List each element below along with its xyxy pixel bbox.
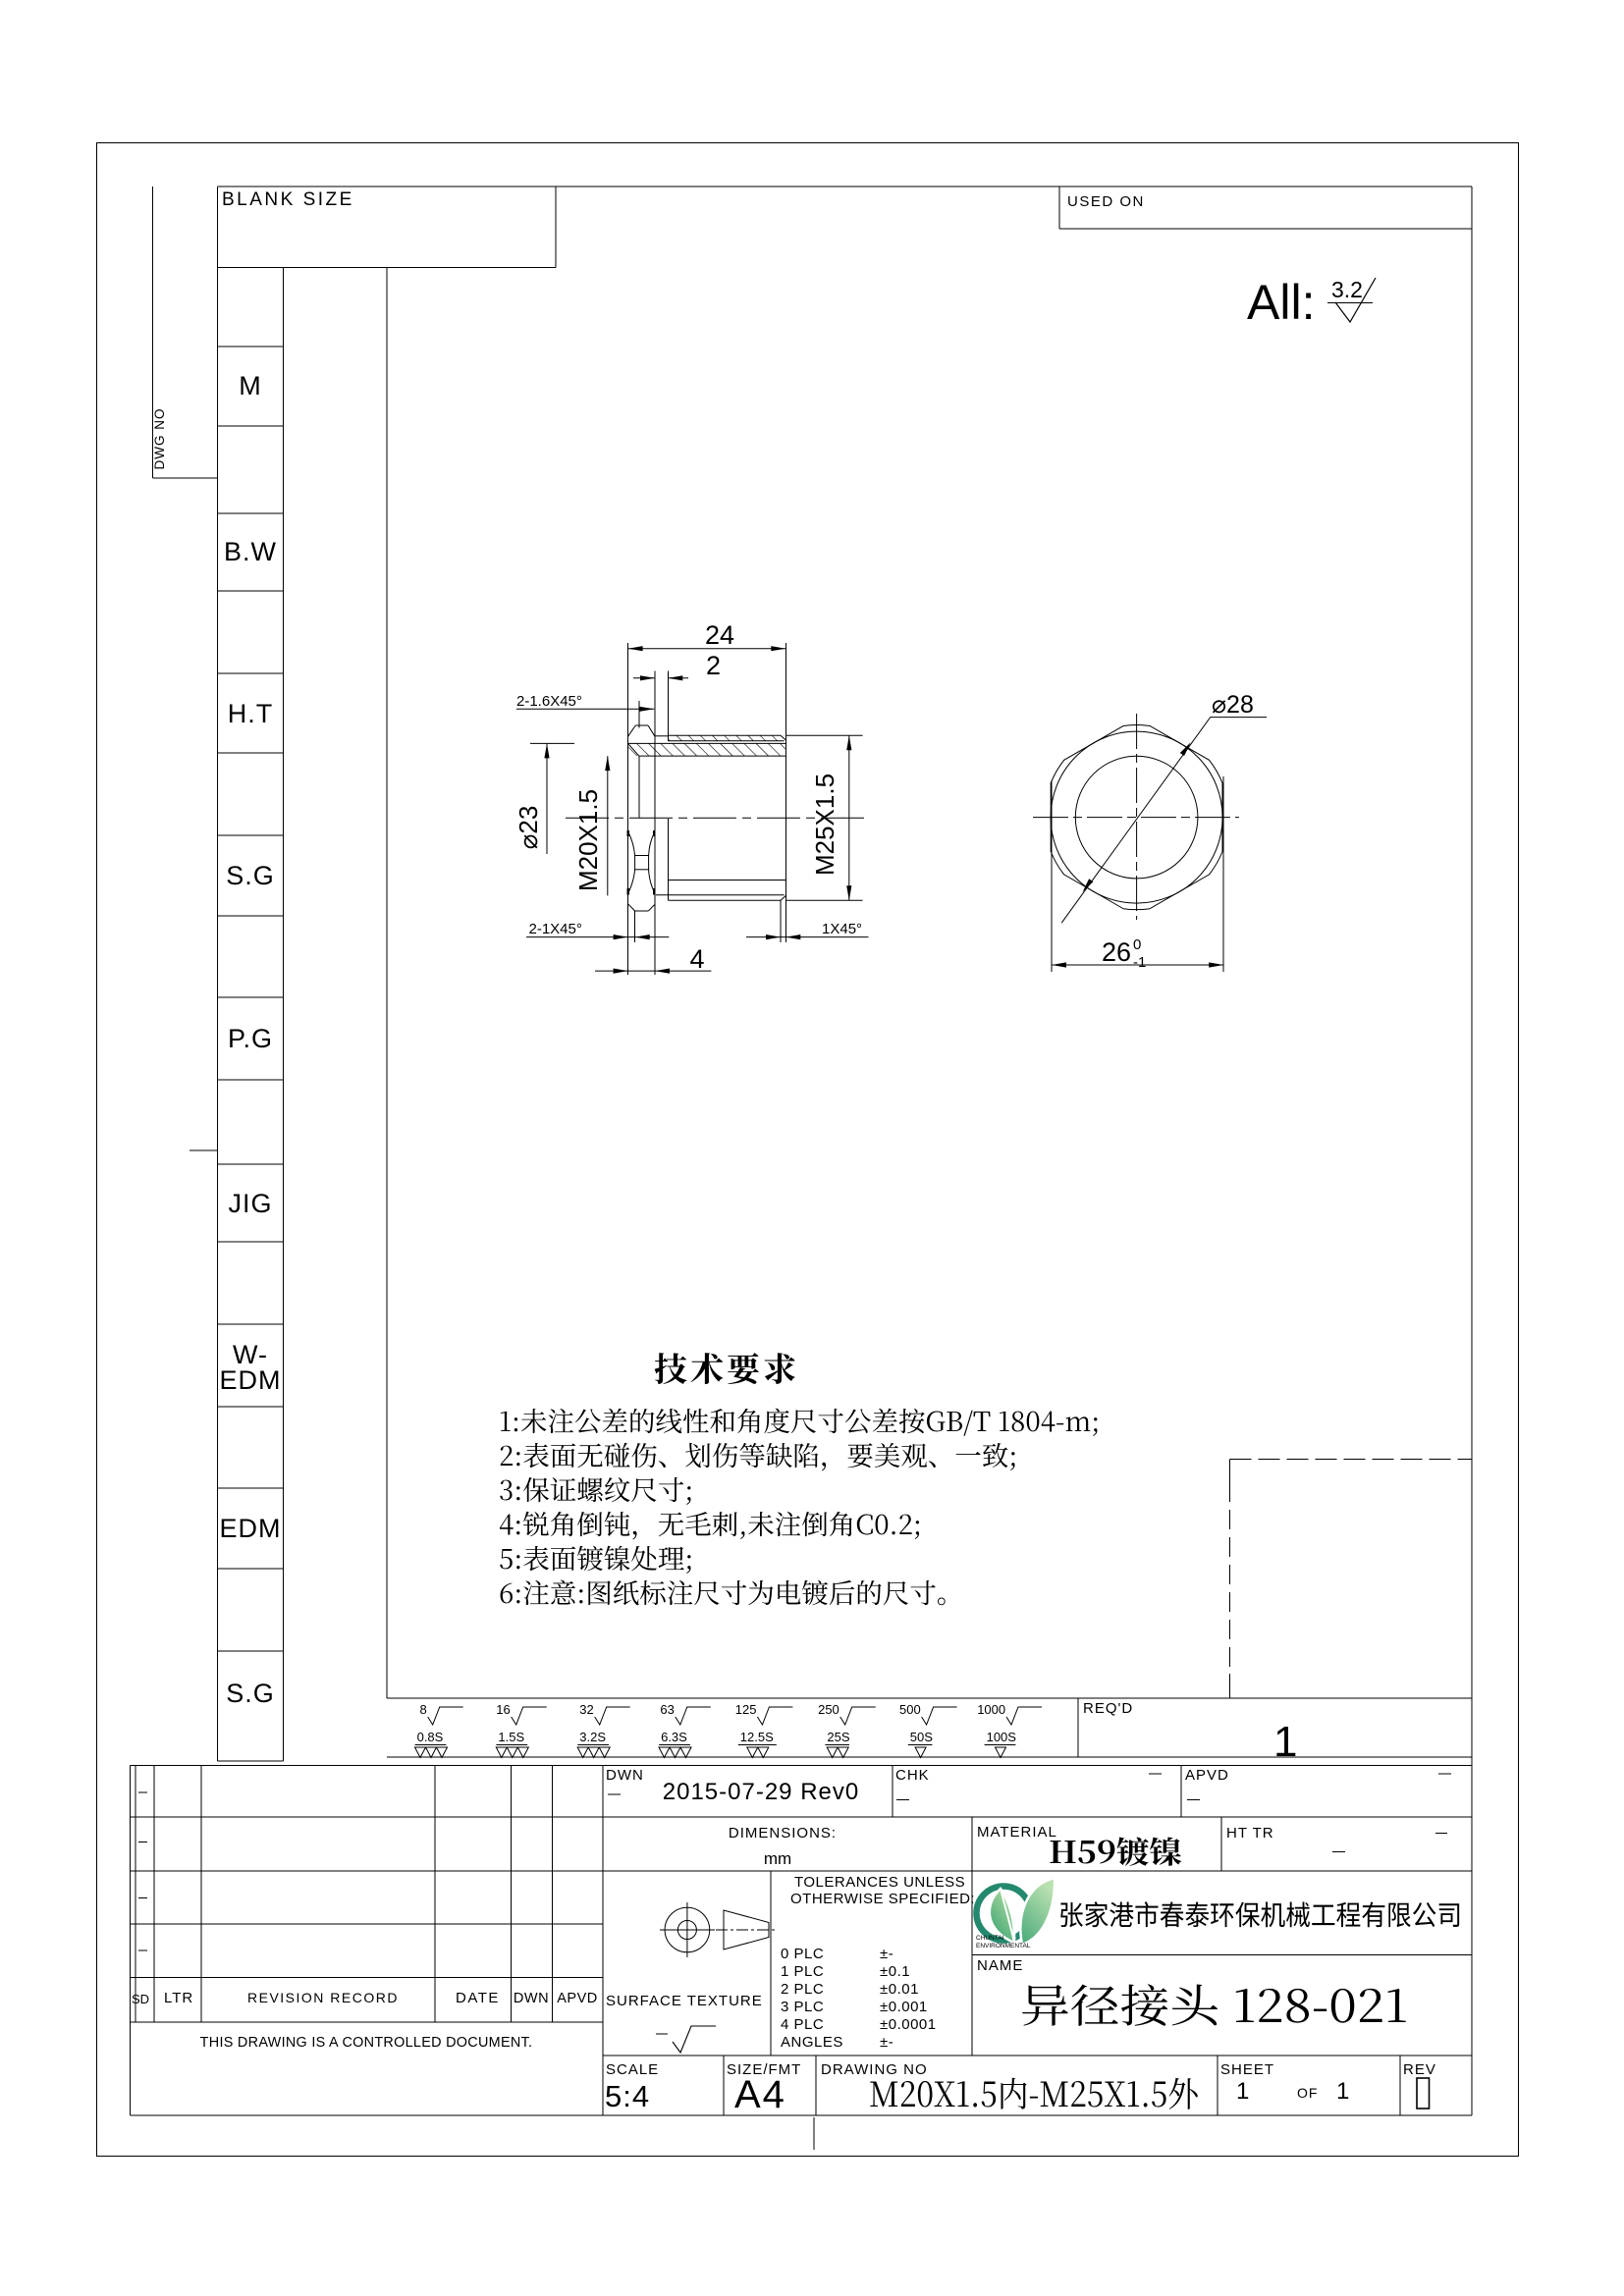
svg-text:2-1.6X45°: 2-1.6X45° bbox=[516, 693, 582, 710]
svg-text:32: 32 bbox=[579, 1702, 593, 1717]
svg-text:-1: -1 bbox=[1133, 954, 1146, 971]
svg-text:⌀28: ⌀28 bbox=[1212, 691, 1254, 719]
svg-text:H.T: H.T bbox=[228, 699, 274, 728]
svg-text:APVD: APVD bbox=[557, 1991, 598, 2006]
svg-text:BLANK SIZE: BLANK SIZE bbox=[222, 189, 354, 210]
svg-text:3.2S: 3.2S bbox=[579, 1730, 606, 1744]
svg-text:S.G: S.G bbox=[226, 1679, 275, 1708]
svg-text:1 PLC: 1 PLC bbox=[781, 1963, 824, 1980]
svg-text:OTHERWISE SPECIFIED:: OTHERWISE SPECIFIED: bbox=[790, 1891, 975, 1907]
svg-text:±0.001: ±0.001 bbox=[880, 1999, 928, 2015]
svg-text:25S: 25S bbox=[827, 1730, 849, 1744]
svg-text:0: 0 bbox=[1133, 936, 1141, 953]
svg-text:26: 26 bbox=[1102, 937, 1131, 967]
svg-text:4: 4 bbox=[689, 944, 704, 974]
svg-text:4 PLC: 4 PLC bbox=[781, 2016, 824, 2033]
svg-text:REVISION RECORD: REVISION RECORD bbox=[247, 1990, 399, 2005]
svg-text:±0.1: ±0.1 bbox=[880, 1963, 910, 1980]
svg-text:±-: ±- bbox=[880, 2034, 893, 2051]
svg-text:M: M bbox=[239, 371, 262, 400]
svg-text:USED ON: USED ON bbox=[1067, 193, 1145, 210]
svg-text:THIS DRAWING IS A CONTROLLED D: THIS DRAWING IS A CONTROLLED DOCUMENT. bbox=[200, 2035, 533, 2051]
svg-text:SURFACE TEXTURE: SURFACE TEXTURE bbox=[606, 1993, 763, 2009]
svg-text:1: 1 bbox=[1336, 2078, 1349, 2105]
svg-text:2: 2 bbox=[706, 651, 721, 680]
svg-text:12.5S: 12.5S bbox=[740, 1730, 774, 1744]
svg-text:P.G: P.G bbox=[228, 1024, 273, 1053]
svg-text:JIG: JIG bbox=[228, 1189, 272, 1218]
svg-text:1: 1 bbox=[1236, 2078, 1249, 2105]
svg-text:50S: 50S bbox=[910, 1730, 933, 1744]
svg-text:1000: 1000 bbox=[977, 1702, 1005, 1717]
svg-text:±0.0001: ±0.0001 bbox=[880, 2016, 937, 2033]
svg-text:EDM: EDM bbox=[220, 1514, 282, 1543]
svg-text:2 PLC: 2 PLC bbox=[781, 1981, 824, 1998]
svg-text:1.5S: 1.5S bbox=[498, 1730, 524, 1744]
svg-text:ANGLES: ANGLES bbox=[781, 2034, 843, 2051]
svg-text:0.8S: 0.8S bbox=[417, 1730, 444, 1744]
svg-text:250: 250 bbox=[818, 1702, 839, 1717]
svg-text:M25X1.5: M25X1.5 bbox=[810, 774, 839, 876]
svg-text:M20X1.5: M20X1.5 bbox=[573, 789, 603, 891]
svg-text:DRAWING NO: DRAWING NO bbox=[821, 2061, 928, 2078]
svg-text:All:: All: bbox=[1247, 275, 1315, 330]
svg-text:63: 63 bbox=[660, 1702, 674, 1717]
svg-text:REV: REV bbox=[1403, 2061, 1436, 2078]
svg-text:5:4: 5:4 bbox=[605, 2079, 650, 2113]
svg-text:1X45°: 1X45° bbox=[822, 921, 862, 937]
svg-text:16: 16 bbox=[496, 1702, 510, 1717]
svg-text:DWG NO: DWG NO bbox=[152, 408, 167, 470]
svg-text:24: 24 bbox=[705, 620, 734, 650]
svg-text:SHEET: SHEET bbox=[1220, 2061, 1274, 2078]
svg-text:DATE: DATE bbox=[456, 1990, 500, 2006]
svg-text:LTR: LTR bbox=[164, 1990, 193, 2006]
svg-text:2015-07-29 Rev0: 2015-07-29 Rev0 bbox=[663, 1779, 859, 1805]
svg-text:6.3S: 6.3S bbox=[661, 1730, 687, 1744]
svg-text:2-1X45°: 2-1X45° bbox=[529, 921, 582, 937]
svg-text:REQ'D: REQ'D bbox=[1083, 1700, 1133, 1717]
svg-text:A4: A4 bbox=[734, 2073, 786, 2116]
svg-text:DIMENSIONS:: DIMENSIONS: bbox=[729, 1825, 837, 1842]
svg-text:EDM: EDM bbox=[220, 1365, 282, 1395]
svg-text:±0.01: ±0.01 bbox=[880, 1981, 919, 1998]
svg-text:1: 1 bbox=[1273, 1718, 1297, 1766]
svg-text:SD: SD bbox=[132, 1992, 149, 2006]
svg-text:3 PLC: 3 PLC bbox=[781, 1999, 824, 2015]
svg-text:DWN: DWN bbox=[514, 1991, 549, 2006]
svg-text:100S: 100S bbox=[987, 1730, 1017, 1744]
svg-text:⌀23: ⌀23 bbox=[514, 806, 543, 850]
svg-text:CHUNTAI: CHUNTAI bbox=[976, 1935, 1004, 1942]
svg-text:HT TR: HT TR bbox=[1226, 1825, 1274, 1842]
svg-text:MATERIAL: MATERIAL bbox=[977, 1824, 1057, 1841]
svg-text:DWN: DWN bbox=[606, 1767, 644, 1784]
svg-text:CHK: CHK bbox=[895, 1767, 930, 1784]
svg-text:SCALE: SCALE bbox=[606, 2061, 659, 2078]
svg-text:APVD: APVD bbox=[1185, 1767, 1229, 1784]
svg-text:3.2: 3.2 bbox=[1331, 277, 1363, 302]
svg-text:±-: ±- bbox=[880, 1946, 893, 1962]
svg-text:500: 500 bbox=[899, 1702, 921, 1717]
svg-text:mm: mm bbox=[764, 1849, 791, 1868]
svg-text:8: 8 bbox=[420, 1702, 427, 1717]
svg-text:B.W: B.W bbox=[224, 537, 277, 566]
svg-text:0 PLC: 0 PLC bbox=[781, 1946, 824, 1962]
svg-text:125: 125 bbox=[735, 1702, 757, 1717]
svg-text:OF: OF bbox=[1297, 2085, 1318, 2101]
svg-text:TOLERANCES UNLESS: TOLERANCES UNLESS bbox=[794, 1874, 965, 1891]
svg-text:S.G: S.G bbox=[226, 861, 275, 890]
svg-text:ENVIRONMENTAL: ENVIRONMENTAL bbox=[976, 1943, 1031, 1949]
svg-text:NAME: NAME bbox=[977, 1957, 1023, 1974]
